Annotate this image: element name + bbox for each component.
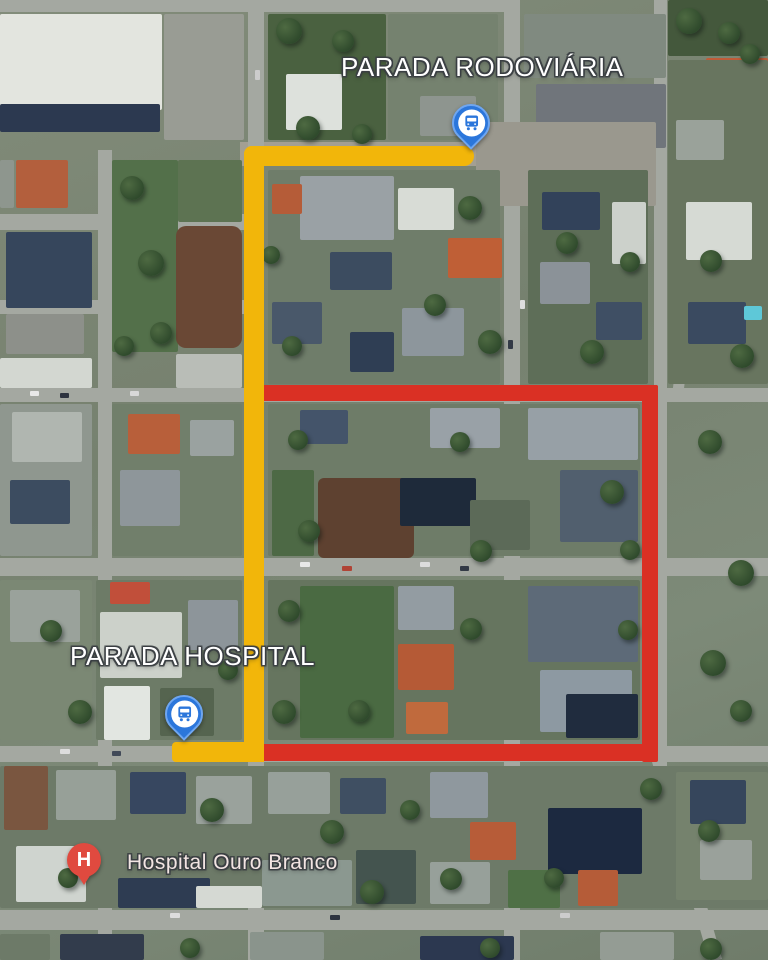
tree xyxy=(400,800,420,820)
map-feature xyxy=(470,822,516,860)
tree xyxy=(200,798,224,822)
car xyxy=(112,751,121,756)
tree xyxy=(730,700,752,722)
tree xyxy=(296,116,320,140)
map-feature xyxy=(0,104,160,132)
hospital-pin[interactable]: H xyxy=(67,843,101,885)
car xyxy=(130,391,139,396)
car xyxy=(30,391,39,396)
map-feature xyxy=(398,188,454,230)
car xyxy=(330,915,340,920)
car xyxy=(520,300,525,309)
map-feature xyxy=(12,412,82,462)
tree xyxy=(728,560,754,586)
map-feature xyxy=(300,176,394,240)
map-feature xyxy=(0,160,14,208)
tree xyxy=(278,600,300,622)
tree xyxy=(180,938,200,958)
tree xyxy=(450,432,470,452)
map-feature xyxy=(430,772,488,818)
map-feature xyxy=(398,586,454,630)
tree xyxy=(458,196,482,220)
pin-circle xyxy=(458,110,485,137)
tree xyxy=(698,820,720,842)
map-feature xyxy=(600,932,674,960)
label-hospital-ouro-branco: Hospital Ouro Branco xyxy=(127,851,338,875)
tree xyxy=(470,540,492,562)
map-feature xyxy=(686,202,752,260)
tree xyxy=(320,820,344,844)
tree xyxy=(272,700,296,724)
pin-body xyxy=(157,687,211,741)
car xyxy=(560,913,570,918)
hospital-pin-letter: H xyxy=(77,849,91,872)
map-feature xyxy=(330,252,392,290)
map-feature xyxy=(250,932,324,960)
map-feature xyxy=(744,306,762,320)
map-feature xyxy=(350,332,394,372)
car xyxy=(170,913,180,918)
map-feature xyxy=(0,934,50,960)
map-feature xyxy=(178,160,242,222)
map-feature xyxy=(398,644,454,690)
car xyxy=(508,340,513,349)
bus-stop-pin-rodoviaria[interactable] xyxy=(444,98,498,152)
satellite-map[interactable]: PARADA RODOVIÁRIA PARADA HOSPITAL Hospit… xyxy=(0,0,768,960)
map-feature xyxy=(190,420,234,456)
tree xyxy=(600,480,624,504)
tree xyxy=(352,124,372,144)
tree xyxy=(138,250,164,276)
route-red-right-edge xyxy=(642,385,658,762)
tree xyxy=(676,8,702,34)
tree xyxy=(114,336,134,356)
tree xyxy=(698,430,722,454)
tree xyxy=(40,620,62,642)
road xyxy=(0,910,768,930)
tree xyxy=(424,294,446,316)
map-feature xyxy=(548,808,642,874)
map-feature xyxy=(164,14,244,140)
tree xyxy=(700,938,722,960)
tree xyxy=(620,252,640,272)
map-feature xyxy=(272,470,314,556)
map-feature xyxy=(596,302,642,340)
map-feature xyxy=(688,302,746,344)
label-parada-hospital: PARADA HOSPITAL xyxy=(70,641,315,672)
tree xyxy=(150,322,172,344)
tree xyxy=(120,176,144,200)
map-feature xyxy=(110,582,150,604)
map-feature xyxy=(128,414,180,454)
map-feature xyxy=(4,766,48,830)
tree xyxy=(276,18,302,44)
tree xyxy=(332,30,354,52)
tree xyxy=(544,868,564,888)
map-feature xyxy=(0,14,162,110)
map-feature xyxy=(540,262,590,304)
route-yellow-bottom-segment xyxy=(172,742,264,762)
map-feature xyxy=(566,694,638,738)
map-feature xyxy=(10,480,70,524)
tree xyxy=(288,430,308,450)
tree xyxy=(440,868,462,890)
pin-body xyxy=(444,96,498,150)
tree xyxy=(262,246,280,264)
bus-icon xyxy=(175,705,194,724)
tree xyxy=(348,700,370,722)
route-red-bottom-edge xyxy=(246,744,658,761)
map-feature xyxy=(272,184,302,214)
tree xyxy=(282,336,302,356)
car xyxy=(60,749,70,754)
tree xyxy=(620,540,640,560)
map-feature xyxy=(60,934,144,960)
map-feature xyxy=(120,470,180,526)
route-red-top-edge xyxy=(258,385,658,401)
map-feature xyxy=(340,778,386,814)
hospital-h-icon: H xyxy=(67,843,101,877)
tree xyxy=(700,650,726,676)
map-feature xyxy=(176,354,242,388)
map-feature xyxy=(0,358,92,388)
map-feature xyxy=(448,238,502,278)
pin-circle xyxy=(171,701,198,728)
tree xyxy=(360,880,384,904)
car xyxy=(255,70,260,80)
tree xyxy=(480,938,500,958)
car xyxy=(420,562,430,567)
tree xyxy=(740,44,760,64)
map-feature xyxy=(400,478,476,526)
tree xyxy=(68,700,92,724)
bus-icon xyxy=(462,114,481,133)
map-feature xyxy=(700,840,752,880)
tree xyxy=(298,520,320,542)
map-feature xyxy=(196,886,262,908)
map-feature xyxy=(130,772,186,814)
tree xyxy=(478,330,502,354)
map-feature xyxy=(542,192,600,230)
tree xyxy=(618,620,638,640)
tree xyxy=(700,250,722,272)
map-feature xyxy=(16,160,68,208)
tree xyxy=(460,618,482,640)
tree xyxy=(556,232,578,254)
car xyxy=(342,566,352,571)
bus-stop-pin-hospital[interactable] xyxy=(157,689,211,743)
map-feature xyxy=(56,770,116,820)
map-feature xyxy=(690,780,746,824)
car xyxy=(460,566,469,571)
map-feature xyxy=(6,232,92,308)
tree xyxy=(580,340,604,364)
map-feature xyxy=(406,702,448,734)
car xyxy=(60,393,69,398)
route-yellow-top-segment xyxy=(244,146,474,166)
map-feature xyxy=(560,470,638,542)
map-feature xyxy=(578,870,618,906)
map-feature xyxy=(528,408,638,460)
map-feature xyxy=(676,120,724,160)
map-feature xyxy=(268,772,330,814)
map-feature xyxy=(104,686,150,740)
map-feature xyxy=(176,226,242,348)
map-feature xyxy=(6,314,84,354)
tree xyxy=(718,22,740,44)
label-parada-rodoviaria: PARADA RODOVIÁRIA xyxy=(341,52,624,83)
tree xyxy=(730,344,754,368)
car xyxy=(300,562,310,567)
tree xyxy=(640,778,662,800)
